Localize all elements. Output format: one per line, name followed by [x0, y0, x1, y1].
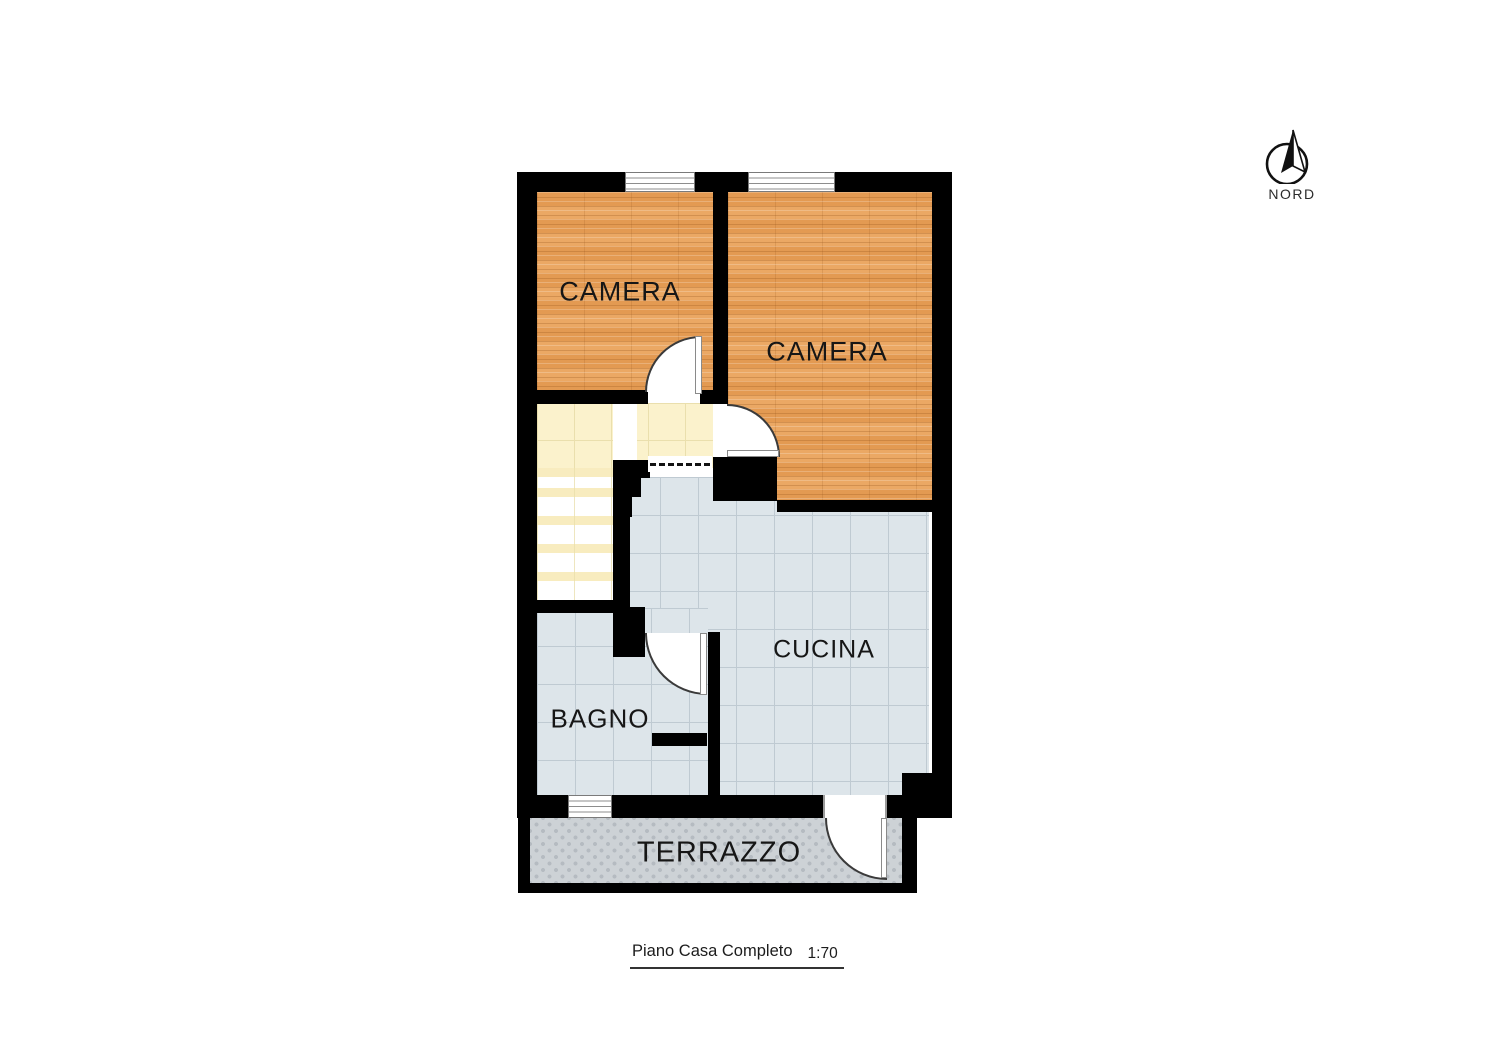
- window: [748, 172, 835, 192]
- staircase: [537, 468, 613, 600]
- room-label-cucina: CUCINA: [773, 636, 875, 665]
- terrace-door-opening: [823, 795, 887, 818]
- wall: [518, 883, 917, 893]
- wall: [517, 172, 952, 192]
- wall: [537, 390, 648, 404]
- wall: [708, 632, 720, 795]
- north-arrow-icon: [1260, 120, 1324, 184]
- door-leaf: [881, 818, 887, 878]
- wall: [932, 192, 952, 773]
- compass-label: NORD: [1268, 186, 1315, 202]
- wall: [902, 818, 917, 883]
- wall: [777, 500, 935, 512]
- room-label-terrazzo: TERRAZZO: [637, 837, 801, 870]
- door-leaf: [727, 450, 779, 457]
- wall: [537, 600, 622, 613]
- wall: [652, 733, 707, 746]
- floor-plan-page: CAMERA CAMERA CUCINA BAGNO TERRAZZO NORD…: [0, 0, 1500, 1060]
- open-passage-dash: [650, 463, 710, 466]
- wall: [613, 607, 645, 657]
- wall: [713, 457, 777, 501]
- plan-title: Piano Casa Completo: [632, 942, 793, 960]
- plan-scale: 1:70: [808, 945, 838, 962]
- wall: [613, 478, 641, 497]
- room-label-bagno: BAGNO: [551, 704, 650, 735]
- window: [568, 795, 612, 818]
- wall: [518, 818, 530, 893]
- door-leaf: [695, 336, 702, 394]
- wall: [613, 460, 650, 478]
- wall: [713, 192, 728, 404]
- plan-title-block: Piano Casa Completo1:70: [630, 942, 844, 969]
- wall: [613, 497, 632, 517]
- room-label-camera-1: CAMERA: [559, 277, 681, 308]
- door-leaf: [700, 633, 707, 695]
- stairwell-divider: [613, 403, 637, 468]
- room-label-camera-2: CAMERA: [766, 337, 888, 368]
- window: [625, 172, 695, 192]
- wall: [517, 192, 537, 818]
